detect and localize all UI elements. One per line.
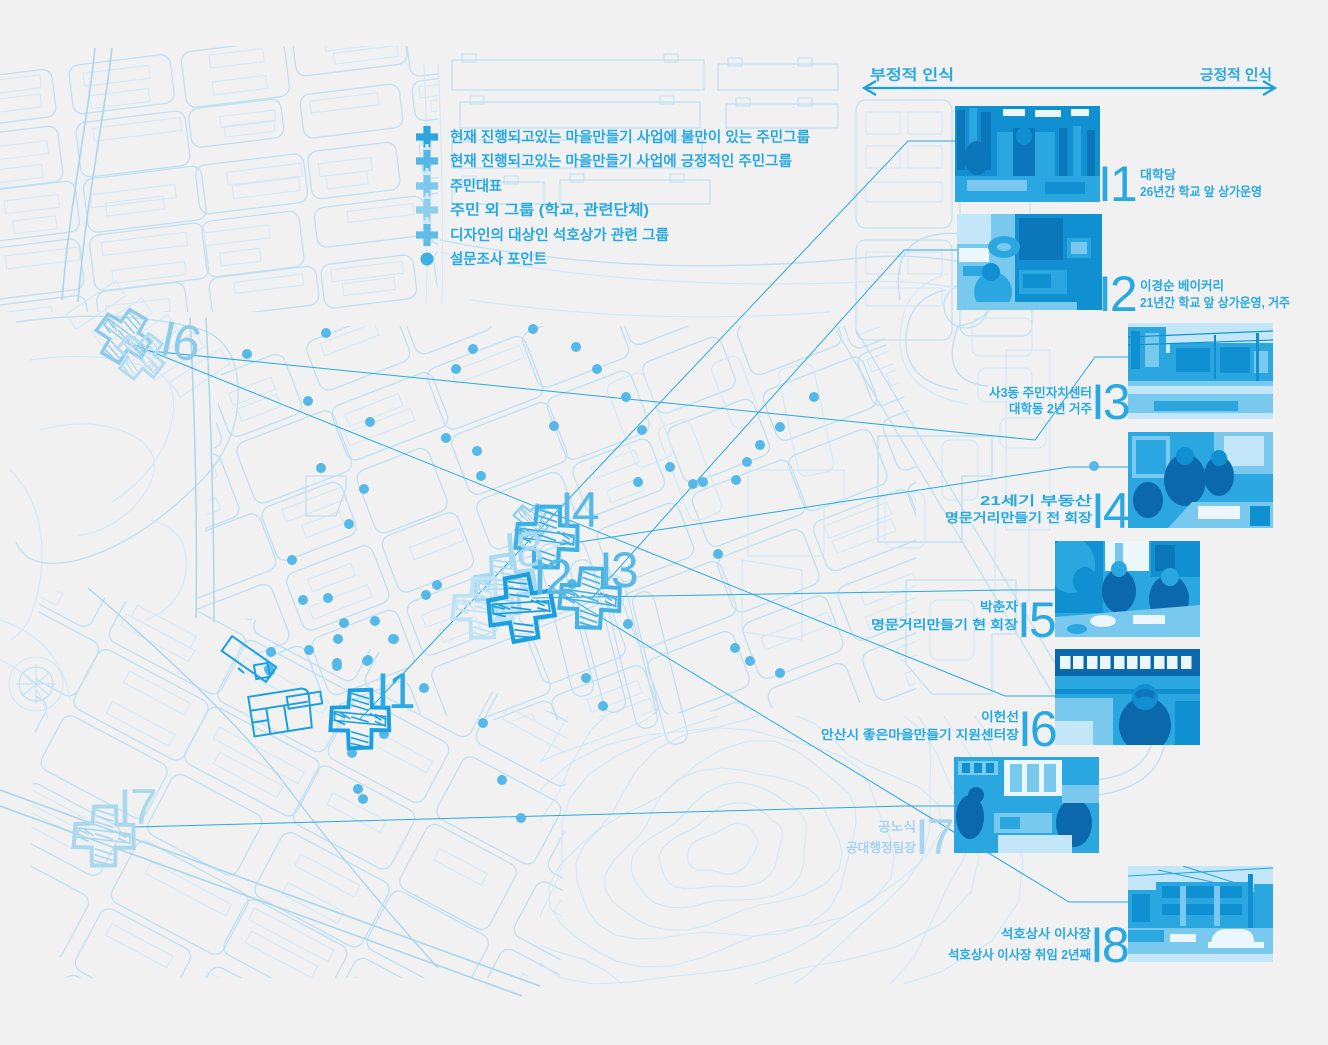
svg-text:21년간 학교 앞 상가운영, 거주: 21년간 학교 앞 상가운영, 거주 bbox=[1140, 295, 1290, 310]
svg-text:I7: I7 bbox=[118, 779, 156, 835]
svg-text:이경순 베이커리: 이경순 베이커리 bbox=[1140, 278, 1224, 293]
svg-text:사3동 주민자치센터: 사3동 주민자치센터 bbox=[989, 385, 1092, 400]
svg-text:대학동 2년 거주: 대학동 2년 거주 bbox=[1009, 401, 1092, 416]
svg-text:디자인의 대상인 석호상가 관련 그룹: 디자인의 대상인 석호상가 관련 그룹 bbox=[450, 226, 669, 244]
svg-text:박춘자: 박춘자 bbox=[980, 599, 1019, 614]
svg-text:명문거리만들기 현 회장: 명문거리만들기 현 회장 bbox=[871, 617, 1019, 632]
svg-text:공대행정팀장: 공대행정팀장 bbox=[846, 840, 916, 855]
svg-text:현재 진행되고있는 마을만들기 사업에 긍정적인 주민그룹: 현재 진행되고있는 마을만들기 사업에 긍정적인 주민그룹 bbox=[450, 152, 792, 170]
svg-text:I2: I2 bbox=[1098, 266, 1136, 322]
svg-text:21세기 부동산: 21세기 부동산 bbox=[980, 493, 1093, 508]
svg-text:석호상사 이사장 취임 2년째: 석호상사 이사장 취임 2년째 bbox=[948, 947, 1091, 962]
svg-text:I4: I4 bbox=[560, 482, 599, 538]
svg-text:I3: I3 bbox=[599, 542, 637, 598]
svg-text:공노식: 공노식 bbox=[878, 819, 916, 834]
svg-text:I1: I1 bbox=[376, 663, 414, 719]
svg-text:안산시 좋은마을만들기 지원센터장: 안산시 좋은마을만들기 지원센터장 bbox=[821, 727, 1020, 742]
svg-text:I5: I5 bbox=[1017, 592, 1055, 648]
svg-text:대학당: 대학당 bbox=[1140, 167, 1177, 182]
svg-text:주민 외 그룹 (학교, 관련단체): 주민 외 그룹 (학교, 관련단체) bbox=[450, 201, 649, 219]
svg-text:I1: I1 bbox=[1098, 156, 1136, 212]
svg-text:명문거리만들기 전 회장: 명문거리만들기 전 회장 bbox=[945, 510, 1093, 525]
svg-text:I8: I8 bbox=[1090, 917, 1128, 973]
svg-text:현재 진행되고있는 마을만들기 사업에 불만이 있는 주민그: 현재 진행되고있는 마을만들기 사업에 불만이 있는 주민그룹 bbox=[450, 128, 810, 146]
svg-text:I6: I6 bbox=[1018, 701, 1056, 757]
svg-text:I7: I7 bbox=[915, 809, 953, 865]
svg-text:설문조사 포인트: 설문조사 포인트 bbox=[450, 250, 547, 268]
svg-text:26년간 학교 앞 상가운영: 26년간 학교 앞 상가운영 bbox=[1140, 184, 1262, 199]
svg-text:부정적 인식: 부정적 인식 bbox=[870, 66, 954, 84]
svg-text:I2: I2 bbox=[533, 549, 571, 605]
svg-text:긍정적 인식: 긍정적 인식 bbox=[1200, 66, 1272, 84]
svg-text:I4: I4 bbox=[1091, 483, 1130, 539]
svg-text:석호상사 이사장: 석호상사 이사장 bbox=[1001, 926, 1092, 941]
svg-text:I3: I3 bbox=[1091, 374, 1129, 430]
svg-text:주민대표: 주민대표 bbox=[450, 178, 502, 195]
svg-text:이헌선: 이헌선 bbox=[981, 709, 1019, 724]
